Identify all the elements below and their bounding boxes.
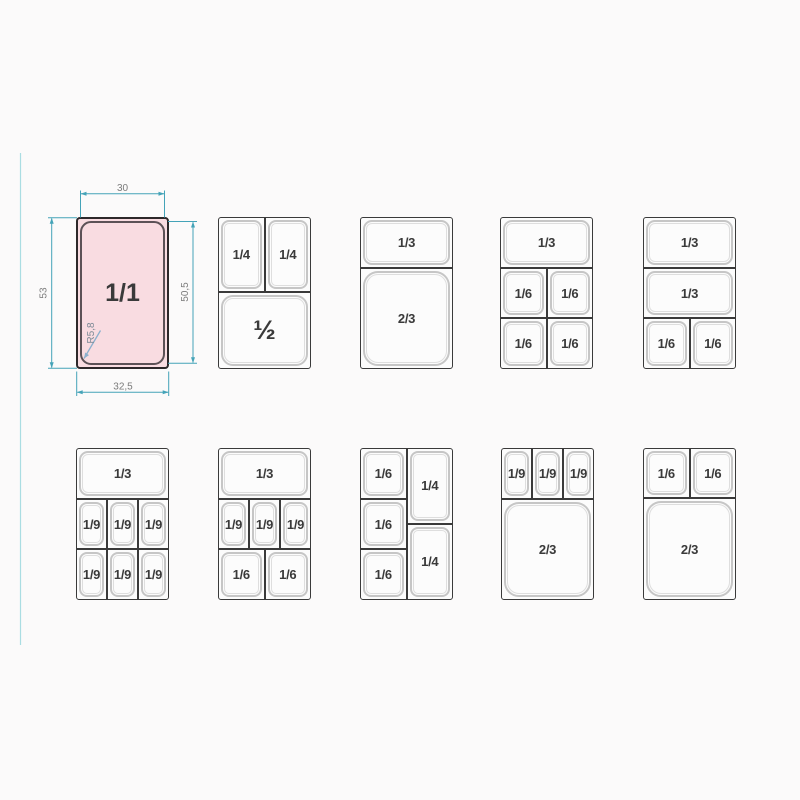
svg-text:30: 30	[117, 183, 129, 194]
svg-text:R5,8: R5,8	[86, 322, 97, 344]
svg-text:50,5: 50,5	[180, 282, 191, 302]
svg-text:53: 53	[39, 287, 50, 299]
svg-text:32,5: 32,5	[113, 382, 133, 393]
